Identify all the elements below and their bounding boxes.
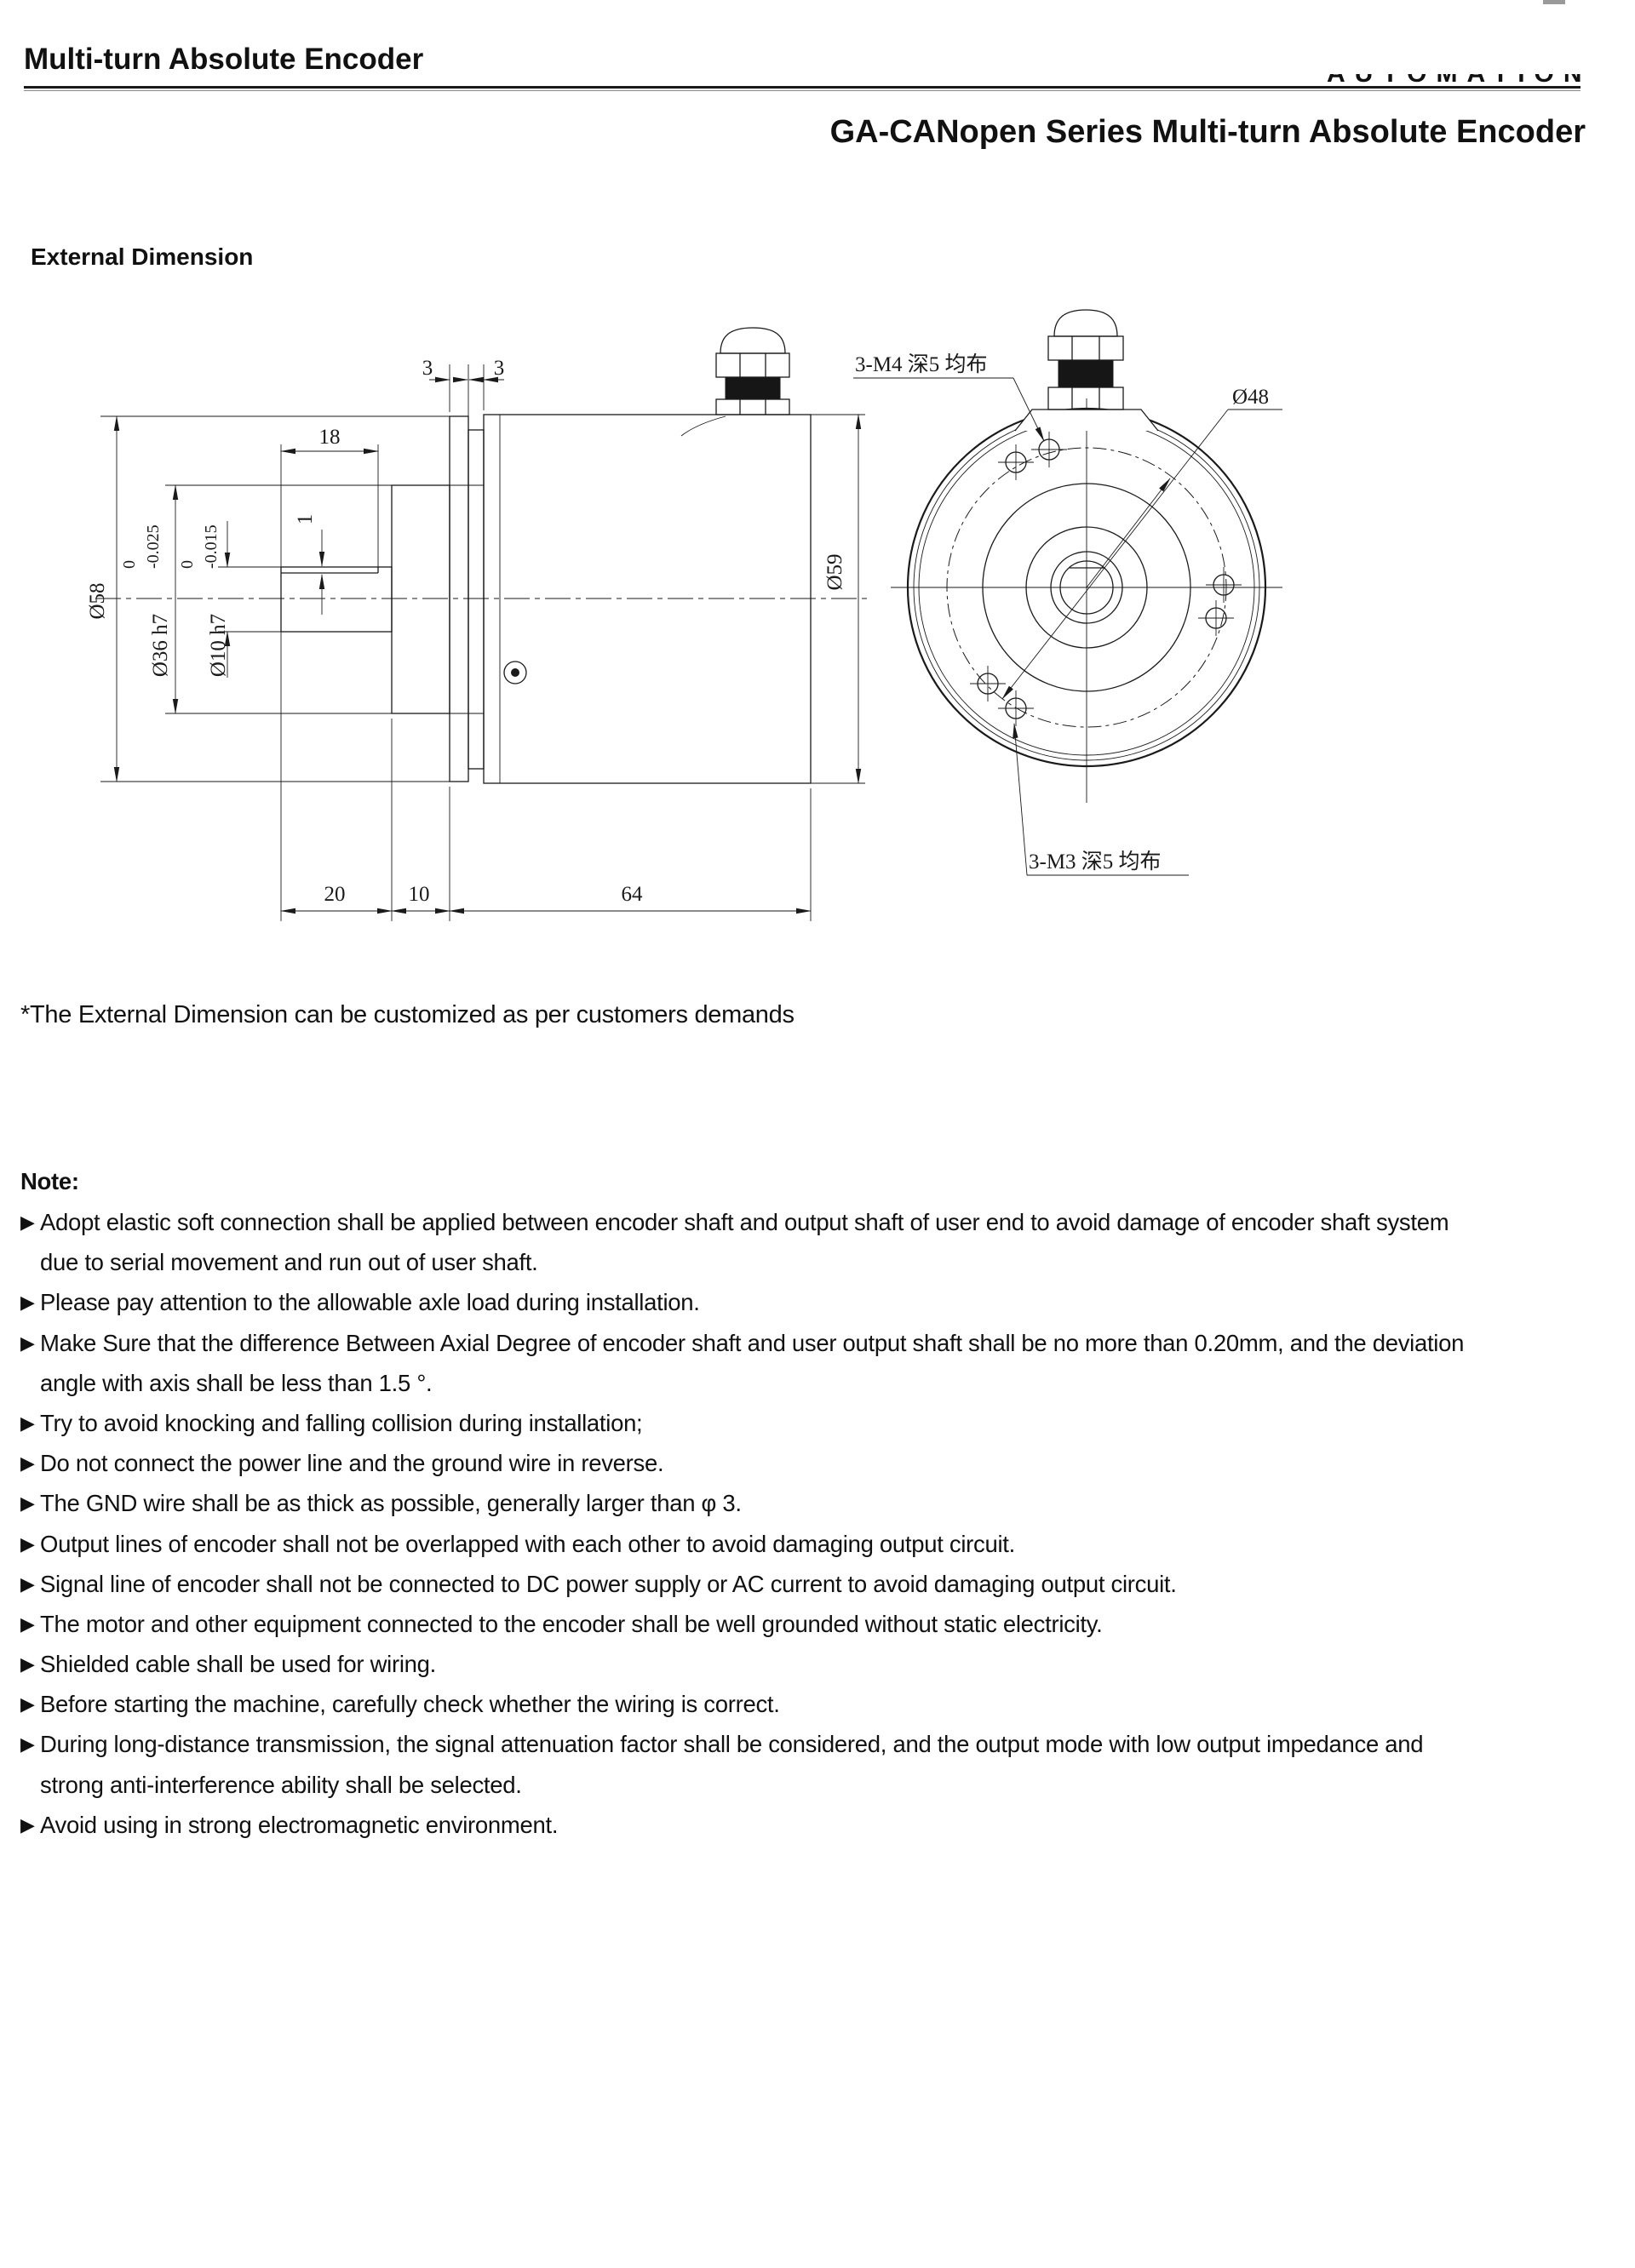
note-text: strong anti-interference ability shall b…	[40, 1772, 522, 1798]
note-item-continuation: due to serial movement and run out of us…	[20, 1242, 1621, 1282]
callout-dia48-label: Ø48	[1232, 386, 1269, 409]
callout-m4-label: 3-M4 深5 均布	[855, 352, 988, 376]
note-bullet-icon: ▶	[20, 1524, 35, 1564]
note-item: ▶Make Sure that the difference Between A…	[20, 1323, 1621, 1363]
note-text: Adopt elastic soft connection shall be a…	[40, 1209, 1449, 1235]
callout-m3: 3-M3 深5 均布	[1014, 724, 1189, 875]
callout-m3-label: 3-M3 深5 均布	[1029, 850, 1162, 873]
note-text: Output lines of encoder shall not be ove…	[40, 1531, 1015, 1557]
note-text: During long-distance transmission, the s…	[40, 1731, 1423, 1757]
note-bullet-icon: ▶	[20, 1564, 35, 1604]
dim-dia59: Ø59	[811, 415, 865, 783]
note-bullet-icon: ▶	[20, 1323, 35, 1363]
surface-leader-mark	[681, 416, 726, 436]
note-text: due to serial movement and run out of us…	[40, 1249, 538, 1275]
dim-1: 1	[294, 514, 322, 615]
note-text: The motor and other equipment connected …	[40, 1611, 1102, 1637]
note-bullet-icon: ▶	[20, 1202, 35, 1242]
dimension-drawing: Ø58 Ø36 h7 0 -0.025 Ø10 h7 0 -0.015	[0, 281, 1635, 936]
dim-label-dia36-tol-lower: -0.025	[144, 524, 163, 569]
note-bullet-icon: ▶	[20, 1724, 35, 1764]
dim-label-dia10-tol-lower: -0.015	[202, 524, 221, 569]
note-text: Avoid using in strong electromagnetic en…	[40, 1812, 558, 1838]
dim-label-dia10: Ø10 h7	[207, 614, 230, 677]
dim-label-3-right: 3	[494, 357, 505, 380]
note-text: Make Sure that the difference Between Ax…	[40, 1330, 1464, 1356]
note-item: ▶Output lines of encoder shall not be ov…	[20, 1524, 1621, 1564]
note-bullet-icon: ▶	[20, 1604, 35, 1644]
note-item: ▶Avoid using in strong electromagnetic e…	[20, 1805, 1621, 1845]
dim-label-dia58: Ø58	[86, 582, 109, 619]
dim-label-dia59: Ø59	[823, 553, 846, 590]
page-title: Multi-turn Absolute Encoder	[24, 43, 423, 77]
dim-label-64: 64	[622, 883, 644, 906]
flange-and-body	[450, 415, 811, 783]
callout-dia48: Ø48	[1002, 386, 1282, 699]
notes-section: Note: ▶Adopt elastic soft connection sha…	[20, 1161, 1621, 1845]
customize-footnote: *The External Dimension can be customize…	[20, 1001, 795, 1029]
dim-label-dia10-tol-upper: 0	[178, 560, 197, 569]
note-bullet-icon: ▶	[20, 1805, 35, 1845]
note-item: ▶Do not connect the power line and the g…	[20, 1443, 1621, 1483]
cable-gland-side	[716, 328, 789, 415]
title-rule	[24, 86, 1580, 89]
dim-label-dia36-tol-upper: 0	[120, 560, 139, 569]
note-text: Shielded cable shall be used for wiring.	[40, 1651, 436, 1677]
dim-label-10: 10	[409, 883, 430, 906]
note-text: Before starting the machine, carefully c…	[40, 1691, 780, 1717]
brand-watermark-clipped: AUTOMATION	[1327, 74, 1584, 85]
notes-heading: Note:	[20, 1161, 1621, 1202]
note-item: ▶The motor and other equipment connected…	[20, 1604, 1621, 1644]
dim-label-18: 18	[319, 426, 341, 449]
dim-label-1: 1	[294, 514, 317, 525]
dim-18: 18	[281, 426, 378, 921]
dim-label-20: 20	[324, 883, 346, 906]
dim-label-dia36: Ø36 h7	[149, 614, 172, 677]
note-text: Signal line of encoder shall not be conn…	[40, 1571, 1177, 1597]
series-title: GA-CANopen Series Multi-turn Absolute En…	[0, 114, 1586, 151]
note-text: Do not connect the power line and the gr…	[40, 1450, 663, 1476]
dim-3-3: 3 3	[422, 357, 505, 426]
note-item: ▶During long-distance transmission, the …	[20, 1724, 1621, 1764]
notes-list: ▶Adopt elastic soft connection shall be …	[20, 1202, 1621, 1845]
note-item-continuation: strong anti-interference ability shall b…	[20, 1765, 1621, 1805]
dim-label-3-left: 3	[422, 357, 433, 380]
note-bullet-icon: ▶	[20, 1403, 35, 1443]
note-item: ▶The GND wire shall be as thick as possi…	[20, 1483, 1621, 1523]
cable-gland-front	[1015, 310, 1158, 431]
datasheet-page: Multi-turn Absolute Encoder AUTOMATION G…	[0, 0, 1635, 2268]
note-item: ▶Try to avoid knocking and falling colli…	[20, 1403, 1621, 1443]
note-bullet-icon: ▶	[20, 1282, 35, 1322]
note-text: Please pay attention to the allowable ax…	[40, 1289, 700, 1315]
dim-bottom-lengths: 20 10 64	[281, 719, 811, 921]
note-item: ▶Signal line of encoder shall not be con…	[20, 1564, 1621, 1604]
note-bullet-icon: ▶	[20, 1443, 35, 1483]
note-bullet-icon: ▶	[20, 1684, 35, 1724]
note-item-continuation: angle with axis shall be less than 1.5 °…	[20, 1363, 1621, 1403]
dim-dia10: Ø10 h7 0 -0.015	[178, 521, 281, 678]
corner-logo-fragment	[1543, 0, 1565, 4]
shaft-outline	[281, 567, 392, 632]
brand-watermark-text: AUTOMATION	[1327, 74, 1584, 85]
note-text: Try to avoid knocking and falling collis…	[40, 1410, 642, 1436]
note-bullet-icon: ▶	[20, 1483, 35, 1523]
note-bullet-icon: ▶	[20, 1644, 35, 1684]
note-text: angle with axis shall be less than 1.5 °…	[40, 1370, 432, 1396]
section-title: External Dimension	[31, 243, 253, 271]
ground-screw	[504, 661, 526, 684]
note-item: ▶Adopt elastic soft connection shall be …	[20, 1202, 1621, 1242]
note-text: The GND wire shall be as thick as possib…	[40, 1490, 742, 1516]
hub-outline	[392, 485, 450, 713]
title-rule-shadow	[24, 90, 1580, 91]
note-item: ▶Before starting the machine, carefully …	[20, 1684, 1621, 1724]
dim-dia58: Ø58	[86, 416, 450, 782]
mounting-holes	[970, 432, 1242, 726]
side-view: Ø58 Ø36 h7 0 -0.025 Ø10 h7 0 -0.015	[86, 328, 867, 921]
note-item: ▶Please pay attention to the allowable a…	[20, 1282, 1621, 1322]
front-view: 3-M4 深5 均布 3-M3 深5 均布 Ø48	[853, 310, 1282, 875]
callout-m4: 3-M4 深5 均布	[853, 352, 1044, 441]
note-item: ▶Shielded cable shall be used for wiring…	[20, 1644, 1621, 1684]
